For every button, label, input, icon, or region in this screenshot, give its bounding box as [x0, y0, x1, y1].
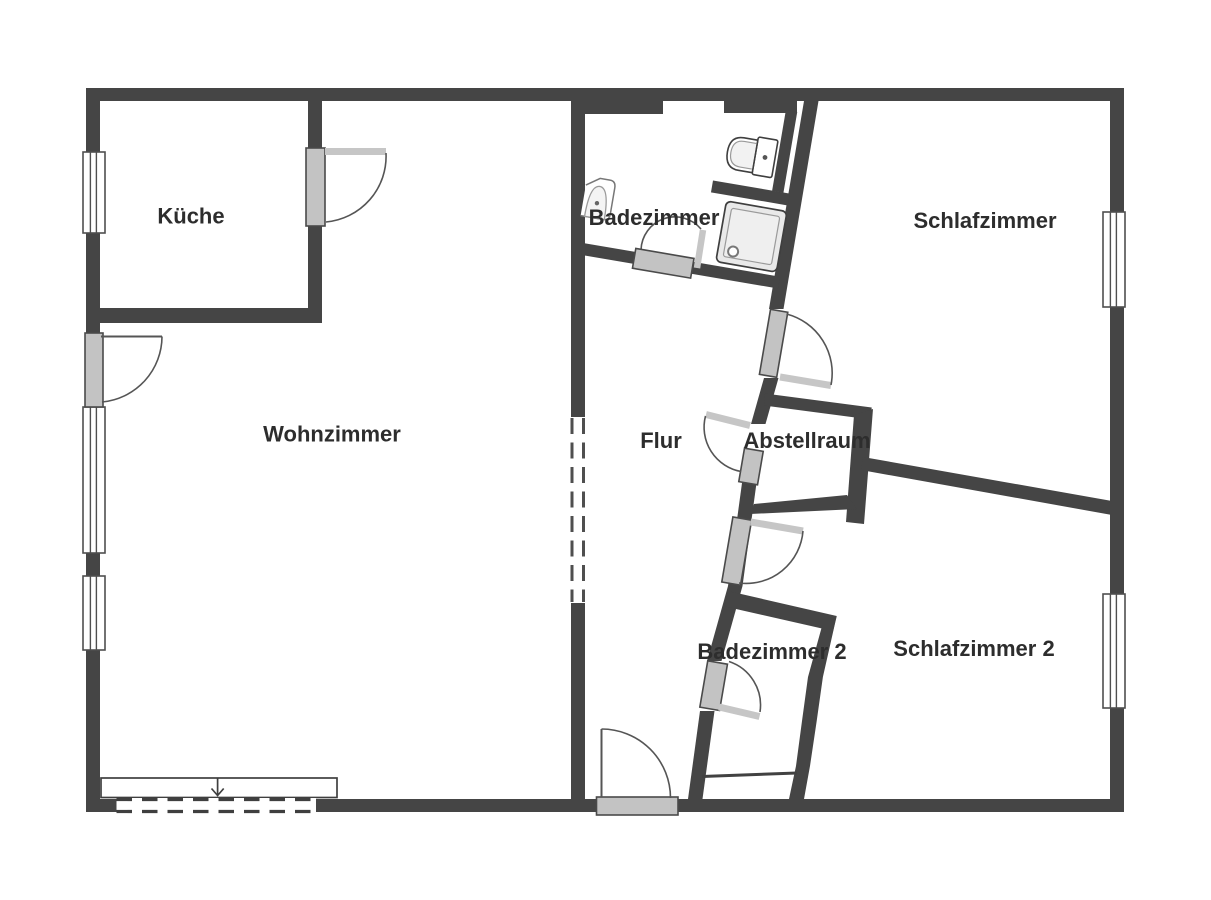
svg-text:Flur: Flur: [640, 428, 682, 453]
svg-text:Wohnzimmer: Wohnzimmer: [263, 422, 401, 447]
svg-text:Schlafzimmer: Schlafzimmer: [913, 208, 1056, 233]
svg-text:Schlafzimmer 2: Schlafzimmer 2: [893, 636, 1054, 661]
svg-text:Badezimmer: Badezimmer: [589, 205, 720, 230]
svg-text:Küche: Küche: [157, 204, 224, 229]
svg-text:Abstellraum: Abstellraum: [743, 428, 870, 453]
svg-text:Badezimmer 2: Badezimmer 2: [697, 639, 846, 664]
